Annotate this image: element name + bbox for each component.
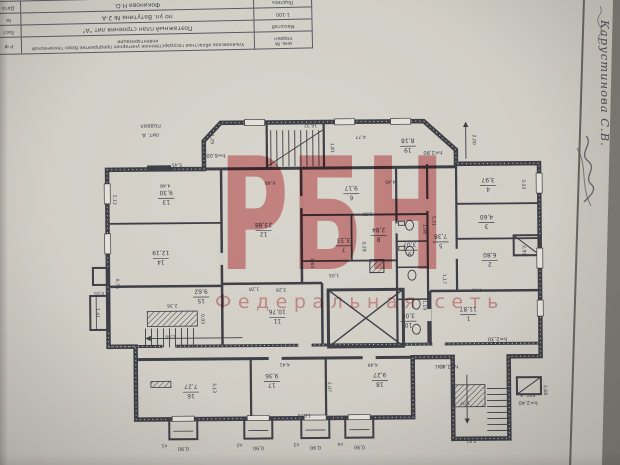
corner-note-scribble bbox=[598, 6, 602, 44]
handwriting-overlay bbox=[0, 0, 620, 465]
photo-of-floor-plan-document: 0,90п10,90п20,90п30,90п4111,8726,8034,60… bbox=[0, 0, 620, 465]
